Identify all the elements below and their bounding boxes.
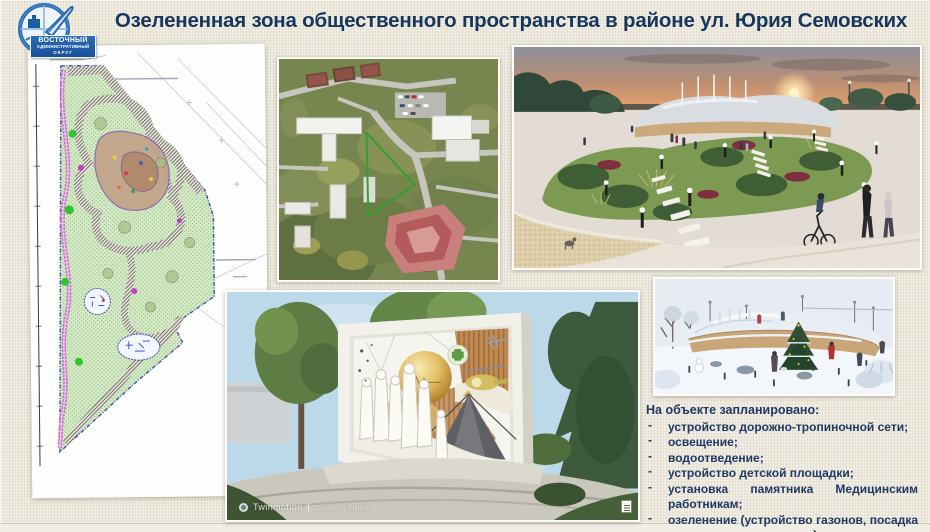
planned-works: На объекте запланировано: устройство дор… [646, 403, 918, 532]
list-item: освещение; [646, 435, 918, 451]
park-render-summer [512, 45, 922, 270]
parking-lot [395, 92, 446, 118]
watermark-brand: Twinmotion [253, 502, 303, 512]
district-name-plate: ВОСТОЧНЫЙ АДМИНИСТРАТИВНЫЙ ОКРУГ [30, 35, 96, 58]
watermark-divider [308, 503, 309, 511]
list-item: устройство детской площадки; [646, 466, 918, 482]
twinmotion-watermark: Twinmotion Community Edition [239, 502, 368, 512]
list-item: озеленение (устройство газонов, посадка … [646, 513, 918, 532]
medical-cross-icon [448, 345, 468, 365]
list-item: установка памятника Медицинским работник… [646, 482, 918, 513]
planned-works-header: На объекте запланировано: [646, 403, 918, 419]
aerial-photo-drawing [279, 59, 498, 280]
certificate-badge-icon [621, 500, 632, 513]
planned-works-list: устройство дорожно-тропиночной сети; осв… [646, 420, 918, 532]
district-logo: ВОСТОЧНЫЙ АДМИНИСТРАТИВНЫЙ ОКРУГ [8, 2, 118, 107]
page-title: Озелененная зона общественного пространс… [100, 9, 922, 33]
winter-render-drawing [655, 279, 893, 394]
presentation-slide: Озелененная зона общественного пространс… [0, 0, 930, 532]
list-item: водоотведение; [646, 451, 918, 467]
monument-render-drawing [227, 292, 638, 520]
twinmotion-logo-icon [239, 503, 248, 512]
monument-render: Twinmotion Community Edition [225, 290, 640, 522]
list-item: устройство дорожно-тропиночной сети; [646, 420, 918, 436]
watermark-edition: Community Edition [314, 505, 369, 512]
park-render-winter [653, 277, 895, 396]
district-name-line3: ОКРУГ [31, 50, 95, 55]
summer-render-drawing [514, 47, 920, 268]
aerial-photo [277, 57, 500, 282]
